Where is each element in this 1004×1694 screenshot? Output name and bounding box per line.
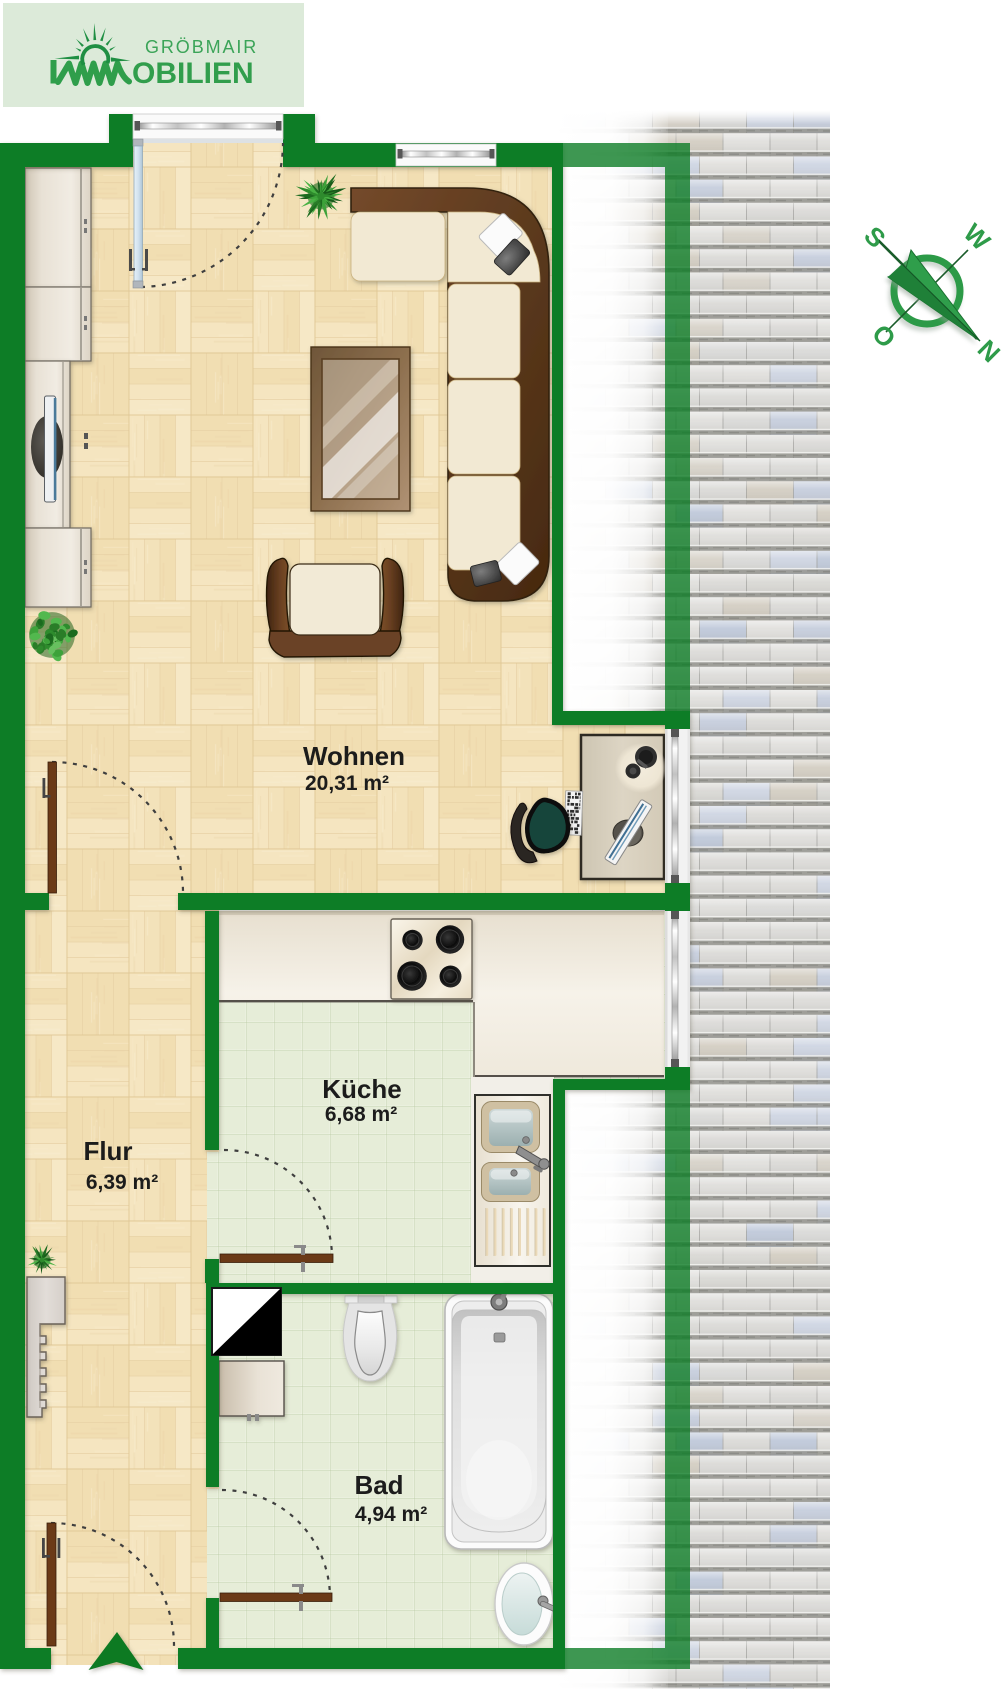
svg-text:W: W [958, 218, 997, 257]
svg-text:Bad: Bad [354, 1470, 403, 1500]
svg-text:6,39 m²: 6,39 m² [86, 1171, 158, 1194]
svg-text:O: O [866, 318, 902, 354]
svg-text:4,94 m²: 4,94 m² [355, 1503, 427, 1526]
svg-text:OBILIEN: OBILIEN [132, 57, 254, 90]
svg-text:GRÖBMAIR: GRÖBMAIR [145, 37, 258, 57]
svg-text:20,31 m²: 20,31 m² [305, 772, 389, 795]
svg-text:Flur: Flur [83, 1136, 132, 1166]
svg-text:6,68 m²: 6,68 m² [325, 1103, 397, 1126]
svg-text:Küche: Küche [322, 1074, 401, 1104]
svg-text:Wohnen: Wohnen [303, 741, 405, 771]
